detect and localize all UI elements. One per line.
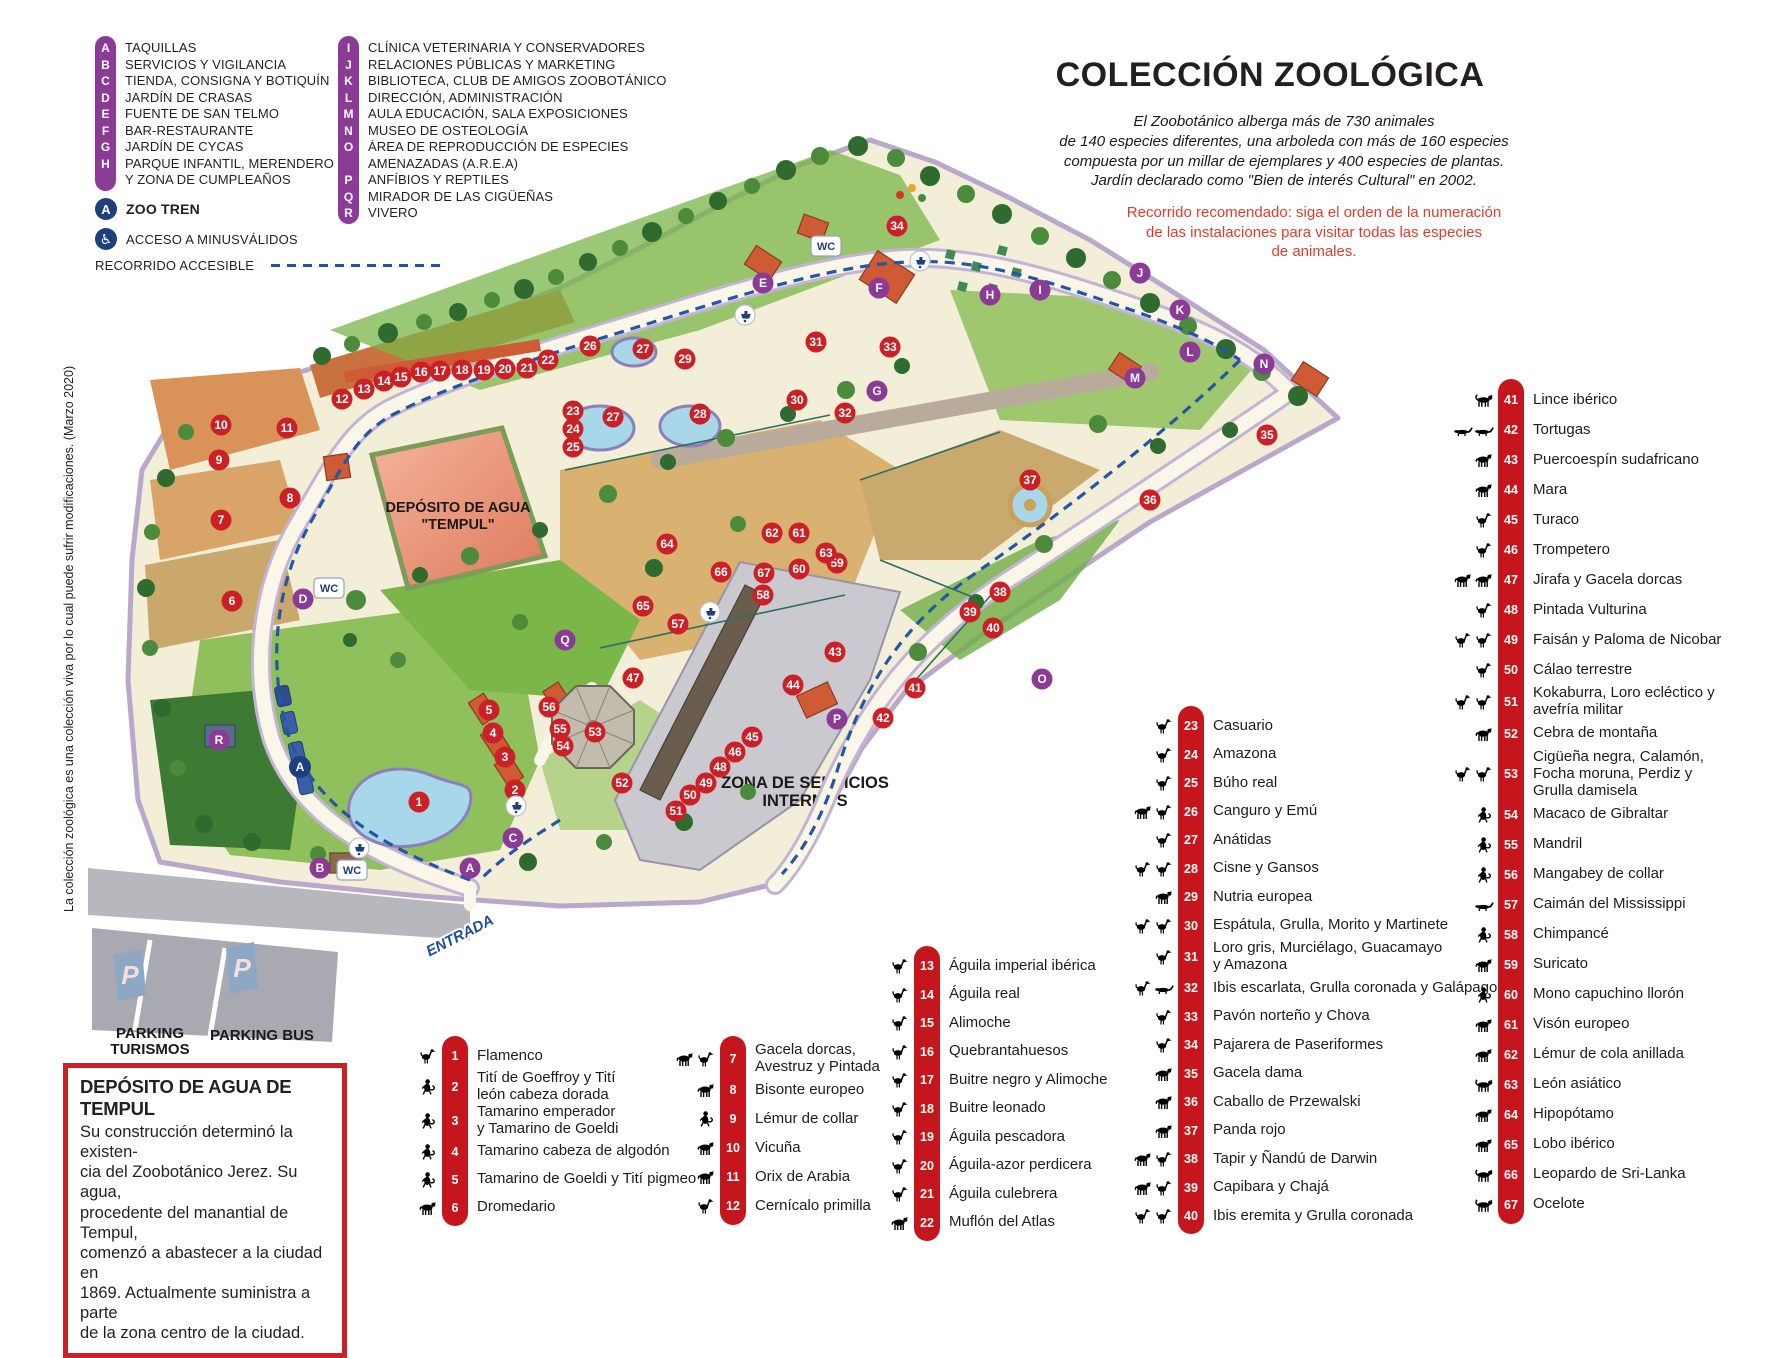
animal-icons [1114, 1092, 1178, 1112]
species-label: Buitre negro y Alimoche [940, 1072, 1107, 1089]
svg-text:19: 19 [477, 363, 491, 377]
bigcat-icon [1474, 1165, 1494, 1185]
species-row: 7 Gacela dorcas, Avestruz y Pintada [636, 1042, 880, 1076]
species-row: 22 Muflón del Atlas [852, 1209, 1107, 1238]
svg-text:53: 53 [588, 725, 602, 739]
species-label: Trompetero [1524, 542, 1610, 559]
legend-letter: R [338, 205, 359, 222]
map-marker-42: 42 [873, 708, 894, 729]
species-label: Buitre leonado [940, 1100, 1046, 1117]
monkey-icon [418, 1170, 438, 1190]
animal-icons [382, 1170, 442, 1190]
species-row: 52 Cebra de montaña [1406, 719, 1721, 749]
species-number: 13 [914, 959, 940, 973]
species-label: Águila imperial ibérica [940, 958, 1096, 975]
species-row: 16 Quebrantahuesos [852, 1038, 1107, 1067]
species-label: Pajarera de Paseriformes [1204, 1037, 1383, 1054]
species-number: 22 [914, 1216, 940, 1230]
species-number: 47 [1498, 573, 1524, 587]
map-marker-15: 15 [391, 367, 412, 388]
legend-label: JARDÍN DE CYCAS [125, 139, 244, 156]
wheelchair-access-legend: ♿ ACCESO A MINUSVÁLIDOS [95, 228, 298, 250]
species-row: 47 Jirafa y Gacela dorcas [1406, 565, 1721, 595]
species-label: Tamarino emperador y Tamarino de Goeldi [468, 1104, 618, 1138]
species-number: 53 [1498, 767, 1524, 781]
animal-icons [1406, 1105, 1498, 1125]
legend-letter: O [338, 139, 359, 172]
svg-text:H: H [986, 288, 995, 302]
quadruped-icon [1474, 1105, 1494, 1125]
species-row: 59 Suricato [1406, 950, 1721, 980]
map-marker-65: 65 [633, 596, 654, 617]
map-marker-16: 16 [411, 362, 432, 383]
animal-icons [1114, 745, 1178, 765]
legend-letter: P [338, 172, 359, 189]
species-row: 44 Mara [1406, 475, 1721, 505]
accessible-route-label: RECORRIDO ACCESIBLE [95, 258, 254, 273]
svg-text:14: 14 [377, 374, 391, 388]
species-number: 31 [1178, 950, 1204, 964]
svg-text:46: 46 [728, 745, 742, 759]
animal-icons [1406, 724, 1498, 744]
map-marker-38: 38 [990, 582, 1011, 603]
map-marker-44: 44 [783, 675, 804, 696]
reptile-icon [1453, 420, 1473, 440]
svg-text:58: 58 [756, 588, 770, 602]
species-label: Visón europeo [1524, 1016, 1629, 1033]
animal-icons [852, 1013, 914, 1033]
map-marker-17: 17 [430, 361, 451, 382]
legend-row: A TAQUILLAS [95, 40, 334, 57]
legend-letter: G [95, 139, 116, 156]
svg-text:38: 38 [993, 585, 1007, 599]
species-row: 20 Águila-azor perdicera [852, 1152, 1107, 1181]
map-marker-10: 10 [211, 415, 232, 436]
animal-icons [852, 1070, 914, 1090]
map-marker-28: 28 [690, 404, 711, 425]
legend-row: H PARQUE INFANTIL, MERENDERO Y ZONA DE C… [95, 156, 334, 189]
map-marker-47: 47 [623, 668, 644, 689]
wheelchair-icon: ♿ [95, 228, 117, 250]
species-number: 20 [914, 1159, 940, 1173]
quadruped-icon [418, 1198, 438, 1218]
bird-icon [1133, 978, 1153, 998]
animal-icons [1114, 1206, 1178, 1226]
bigcat-icon [1474, 390, 1494, 410]
svg-text:WC: WC [817, 241, 835, 253]
reptile-icon [1474, 895, 1494, 915]
animal-icons [1406, 450, 1498, 470]
map-marker-11: 11 [277, 418, 298, 439]
species-number: 64 [1498, 1108, 1524, 1122]
species-number: 24 [1178, 748, 1204, 762]
legend-row: O ÁREA DE REPRODUCCIÓN DE ESPECIES AMENA… [338, 139, 667, 172]
map-marker-46: 46 [725, 742, 746, 763]
legend-letter: Q [338, 189, 359, 206]
animal-icons [1406, 895, 1498, 915]
species-number: 2 [442, 1080, 468, 1094]
species-row: 58 Chimpancé [1406, 920, 1721, 950]
map-marker-23: 23 [563, 401, 584, 422]
species-label: Tortugas [1524, 422, 1591, 439]
monkey-icon [1474, 925, 1494, 945]
species-number: 28 [1178, 862, 1204, 876]
species-row: 61 Visón europeo [1406, 1010, 1721, 1040]
map-marker-62: 62 [762, 523, 783, 544]
species-number: 65 [1498, 1138, 1524, 1152]
map-marker-40: 40 [983, 618, 1004, 639]
species-row: 41 Lince ibérico [1406, 385, 1721, 415]
species-number: 12 [720, 1199, 746, 1213]
svg-text:4: 4 [490, 726, 497, 740]
species-number: 3 [442, 1114, 468, 1128]
species-row: 66 Leopardo de Sri-Lanka [1406, 1160, 1721, 1190]
map-marker-22: 22 [538, 350, 559, 371]
svg-text:60: 60 [792, 562, 806, 576]
species-row: 43 Puercoespín sudafricano [1406, 445, 1721, 475]
bird-icon [890, 1042, 910, 1062]
svg-text:16: 16 [414, 365, 428, 379]
animal-icons [1114, 716, 1178, 736]
species-label: Suricato [1524, 956, 1588, 973]
svg-text:18: 18 [455, 363, 469, 377]
species-label: Orix de Arabia [746, 1169, 850, 1186]
zoo-train-stop: A [289, 756, 311, 778]
animal-icons [1114, 1121, 1178, 1141]
species-number: 35 [1178, 1067, 1204, 1081]
quadruped-icon [1474, 480, 1494, 500]
species-row: 21 Águila culebrera [852, 1180, 1107, 1209]
species-number: 49 [1498, 633, 1524, 647]
species-row: 54 Macaco de Gibraltar [1406, 800, 1721, 830]
species-column-5: 41 Lince ibérico 42 Tortugas 43 Puercoes… [1406, 385, 1721, 1220]
svg-text:N: N [1260, 357, 1269, 371]
svg-text:27: 27 [636, 342, 650, 356]
water-tap-icon [735, 305, 755, 325]
svg-text:P: P [833, 712, 841, 726]
svg-text:26: 26 [583, 339, 597, 353]
svg-text:I: I [1038, 283, 1041, 297]
map-marker-20: 20 [495, 359, 516, 380]
species-number: 4 [442, 1145, 468, 1159]
bird-icon [1154, 1149, 1174, 1169]
svg-text:5: 5 [486, 703, 493, 717]
svg-text:31: 31 [809, 335, 823, 349]
map-marker-50: 50 [680, 785, 701, 806]
quadruped-icon [1154, 1092, 1174, 1112]
species-number: 9 [720, 1112, 746, 1126]
map-marker-32: 32 [835, 403, 856, 424]
legend-row: F BAR-RESTAURANTE [95, 123, 334, 140]
animal-icons [1114, 802, 1178, 822]
map-marker-41: 41 [905, 678, 926, 699]
species-label: Águila-azor perdicera [940, 1157, 1092, 1174]
species-row: 42 Tortugas [1406, 415, 1721, 445]
bird-icon [1154, 1206, 1174, 1226]
animal-icons [382, 1046, 442, 1066]
legend-label: JARDÍN DE CRASAS [125, 90, 252, 107]
tempul-body: Su construcción determinó la existen- ci… [80, 1122, 332, 1343]
animal-icons [1406, 630, 1498, 650]
species-number: 62 [1498, 1048, 1524, 1062]
svg-text:39: 39 [963, 605, 977, 619]
species-label: Mangabey de collar [1524, 866, 1664, 883]
map-marker-56: 56 [539, 697, 560, 718]
tempul-title: DEPÓSITO DE AGUA DE TEMPUL [80, 1076, 332, 1120]
animal-icons [636, 1138, 720, 1158]
species-label: Capibara y Chajá [1204, 1179, 1329, 1196]
animal-icons [382, 1111, 442, 1131]
species-label: Anátidas [1204, 832, 1271, 849]
legend-letter: L [338, 90, 359, 107]
route-recommendation: Recorrido recomendado: siga el orden de … [1118, 203, 1510, 262]
species-label: Turaco [1524, 512, 1579, 529]
map-marker-3: 3 [495, 747, 516, 768]
species-label: Lémur de collar [746, 1111, 858, 1128]
deposito-label2: "TEMPUL" [421, 517, 494, 533]
map-letter-B: B [310, 858, 331, 879]
bird-icon [890, 1099, 910, 1119]
map-marker-27: 27 [603, 407, 624, 428]
species-number: 48 [1498, 603, 1524, 617]
species-label: Canguro y Emú [1204, 803, 1317, 820]
quadruped-icon [1154, 887, 1174, 907]
svg-text:12: 12 [335, 392, 349, 406]
map-marker-27: 27 [633, 339, 654, 360]
species-label: Lobo ibérico [1524, 1136, 1615, 1153]
legend-label: MIRADOR DE LAS CIGÜEÑAS [368, 189, 553, 206]
species-row: 9 Lémur de collar [636, 1105, 880, 1134]
species-label: Tití de Goeffroy y Tití león cabeza dora… [468, 1070, 615, 1104]
legend-letter: A [95, 40, 116, 57]
svg-text:10: 10 [214, 418, 228, 432]
water-tap-icon [700, 602, 720, 622]
svg-text:40: 40 [986, 621, 1000, 635]
bird-icon [890, 1070, 910, 1090]
species-label: Dromedario [468, 1199, 555, 1216]
species-number: 10 [720, 1141, 746, 1155]
map-marker-19: 19 [474, 360, 495, 381]
map-letter-A: A [460, 858, 481, 879]
accessible-route-legend: RECORRIDO ACCESIBLE [95, 258, 446, 273]
species-number: 63 [1498, 1078, 1524, 1092]
svg-text:29: 29 [678, 352, 692, 366]
species-number: 8 [720, 1083, 746, 1097]
species-row: 17 Buitre negro y Alimoche [852, 1066, 1107, 1095]
quadruped-icon [1154, 1121, 1174, 1141]
bird-icon [1133, 916, 1153, 936]
bird-icon [1474, 660, 1494, 680]
legend-row: B SERVICIOS Y VIGILANCIA [95, 57, 334, 74]
species-label: Flamenco [468, 1048, 543, 1065]
species-row: 45 Turaco [1406, 505, 1721, 535]
map-marker-66: 66 [711, 562, 732, 583]
tempul-info-box: DEPÓSITO DE AGUA DE TEMPUL Su construcci… [63, 1063, 347, 1358]
species-label: Mandril [1524, 836, 1582, 853]
quadruped-icon [1474, 1135, 1494, 1155]
dashed-route-icon [271, 264, 446, 267]
quadruped-icon [675, 1049, 695, 1069]
animal-icons [1406, 1075, 1498, 1095]
species-number: 21 [914, 1187, 940, 1201]
reptile-icon [1474, 420, 1494, 440]
svg-text:F: F [875, 281, 882, 295]
bird-icon [890, 1184, 910, 1204]
species-number: 34 [1178, 1038, 1204, 1052]
bird-icon [1133, 859, 1153, 879]
svg-text:A: A [466, 861, 475, 875]
map-letter-Q: Q [555, 630, 576, 651]
svg-text:43: 43 [828, 645, 842, 659]
map-marker-29: 29 [675, 349, 696, 370]
legend-row: C TIENDA, CONSIGNA Y BOTIQUÍN [95, 73, 334, 90]
legend-label: TIENDA, CONSIGNA Y BOTIQUÍN [125, 73, 329, 90]
svg-text:56: 56 [542, 700, 556, 714]
svg-text:67: 67 [757, 566, 771, 580]
svg-text:66: 66 [714, 565, 728, 579]
deposito-label: DEPÓSITO DE AGUA [385, 498, 531, 516]
map-marker-21: 21 [517, 358, 538, 379]
species-number: 67 [1498, 1198, 1524, 1212]
svg-text:8: 8 [287, 491, 294, 505]
monkey-icon [1474, 985, 1494, 1005]
species-row: 51 Kokaburra, Loro ecléctico y avefría m… [1406, 685, 1721, 719]
species-label: Lince ibérico [1524, 392, 1617, 409]
animal-icons [852, 1156, 914, 1176]
bird-icon [1154, 859, 1174, 879]
svg-text:1: 1 [416, 795, 423, 809]
species-number: 14 [914, 988, 940, 1002]
animal-icons [852, 956, 914, 976]
map-letter-H: H [980, 285, 1001, 306]
bird-icon [1154, 830, 1174, 850]
svg-text:32: 32 [838, 406, 852, 420]
svg-text:6: 6 [229, 594, 236, 608]
map-letter-L: L [1180, 342, 1201, 363]
bird-icon [1154, 773, 1174, 793]
species-number: 61 [1498, 1018, 1524, 1032]
animal-icons [1406, 510, 1498, 530]
animal-icons [1406, 955, 1498, 975]
species-number: 46 [1498, 543, 1524, 557]
svg-text:A: A [296, 760, 305, 774]
species-label: Búho real [1204, 775, 1277, 792]
legend-letter: C [95, 73, 116, 90]
map-letter-F: F [869, 278, 890, 299]
animal-icons [382, 1077, 442, 1097]
species-number: 32 [1178, 981, 1204, 995]
legend-letter: B [95, 57, 116, 74]
species-label: Pavón norteño y Chova [1204, 1008, 1370, 1025]
species-label: Ocelote [1524, 1196, 1585, 1213]
species-number: 50 [1498, 663, 1524, 677]
svg-text:48: 48 [713, 760, 727, 774]
species-row: 46 Trompetero [1406, 535, 1721, 565]
animal-icons [636, 1080, 720, 1100]
quadruped-icon [1154, 1064, 1174, 1084]
svg-text:54: 54 [556, 739, 570, 753]
svg-text:3: 3 [502, 750, 509, 764]
animal-icons [1406, 660, 1498, 680]
animal-icons [382, 1198, 442, 1218]
species-number: 60 [1498, 988, 1524, 1002]
svg-text:41: 41 [908, 681, 922, 695]
svg-text:L: L [1186, 345, 1193, 359]
legend-row: L DIRECCIÓN, ADMINISTRACIÓN [338, 90, 667, 107]
svg-text:63: 63 [819, 546, 833, 560]
svg-text:64: 64 [660, 537, 674, 551]
species-number: 41 [1498, 393, 1524, 407]
bird-icon [696, 1049, 716, 1069]
map-marker-63: 63 [816, 543, 837, 564]
animal-icons [1114, 887, 1178, 907]
map-letter-C: C [503, 828, 524, 849]
svg-text:13: 13 [357, 382, 371, 396]
animal-icons [636, 1049, 720, 1069]
quadruped-icon [1133, 802, 1153, 822]
legend-label: CLÍNICA VETERINARIA Y CONSERVADORES [368, 40, 645, 57]
legend-label: FUENTE DE SAN TELMO [125, 106, 279, 123]
species-number: 38 [1178, 1152, 1204, 1166]
species-label: Muflón del Atlas [940, 1214, 1055, 1231]
monkey-icon [1474, 805, 1494, 825]
map-marker-43: 43 [825, 642, 846, 663]
map-marker-24: 24 [563, 419, 584, 440]
animal-icons [1406, 925, 1498, 945]
species-number: 58 [1498, 928, 1524, 942]
species-number: 42 [1498, 423, 1524, 437]
side-note: La colección zoológica es una colección … [62, 366, 76, 912]
p-sign: P [121, 960, 139, 990]
legend-row: J RELACIONES PÚBLICAS Y MARKETING [338, 57, 667, 74]
monkey-icon [418, 1111, 438, 1131]
svg-text:9: 9 [216, 453, 223, 467]
species-number: 39 [1178, 1181, 1204, 1195]
bird-icon [890, 956, 910, 976]
bird-icon [696, 1196, 716, 1216]
svg-text:50: 50 [683, 788, 697, 802]
species-number: 23 [1178, 719, 1204, 733]
map-marker-34: 34 [887, 216, 908, 237]
animal-icons [1114, 916, 1178, 936]
page-title: COLECCIÓN ZOOLÓGICA [1050, 56, 1490, 95]
species-number: 29 [1178, 890, 1204, 904]
monkey-icon [696, 1109, 716, 1129]
quadruped-icon [1474, 570, 1494, 590]
svg-text:45: 45 [745, 730, 759, 744]
species-number: 57 [1498, 898, 1524, 912]
map-marker-8: 8 [280, 488, 301, 509]
quadruped-icon [1474, 1015, 1494, 1035]
species-number: 56 [1498, 868, 1524, 882]
animal-icons [1114, 859, 1178, 879]
legend-label: SERVICIOS Y VIGILANCIA [125, 57, 286, 74]
animal-icons [636, 1167, 720, 1187]
zoo-train-legend: A ZOO TREN [95, 198, 200, 220]
species-label: Gacela dama [1204, 1065, 1302, 1082]
svg-text:36: 36 [1143, 493, 1157, 507]
legend-row: E FUENTE DE SAN TELMO [95, 106, 334, 123]
species-row: 50 Cálao terrestre [1406, 655, 1721, 685]
species-label: Lémur de cola anillada [1524, 1046, 1684, 1063]
map-marker-58: 58 [753, 585, 774, 606]
species-number: 37 [1178, 1124, 1204, 1138]
map-marker-26: 26 [580, 336, 601, 357]
map-letter-I: I [1030, 280, 1051, 301]
species-label: Cigüeña negra, Calamón, Focha moruna, Pe… [1524, 749, 1704, 800]
map-marker-25: 25 [563, 437, 584, 458]
species-label: Quebrantahuesos [940, 1043, 1068, 1060]
